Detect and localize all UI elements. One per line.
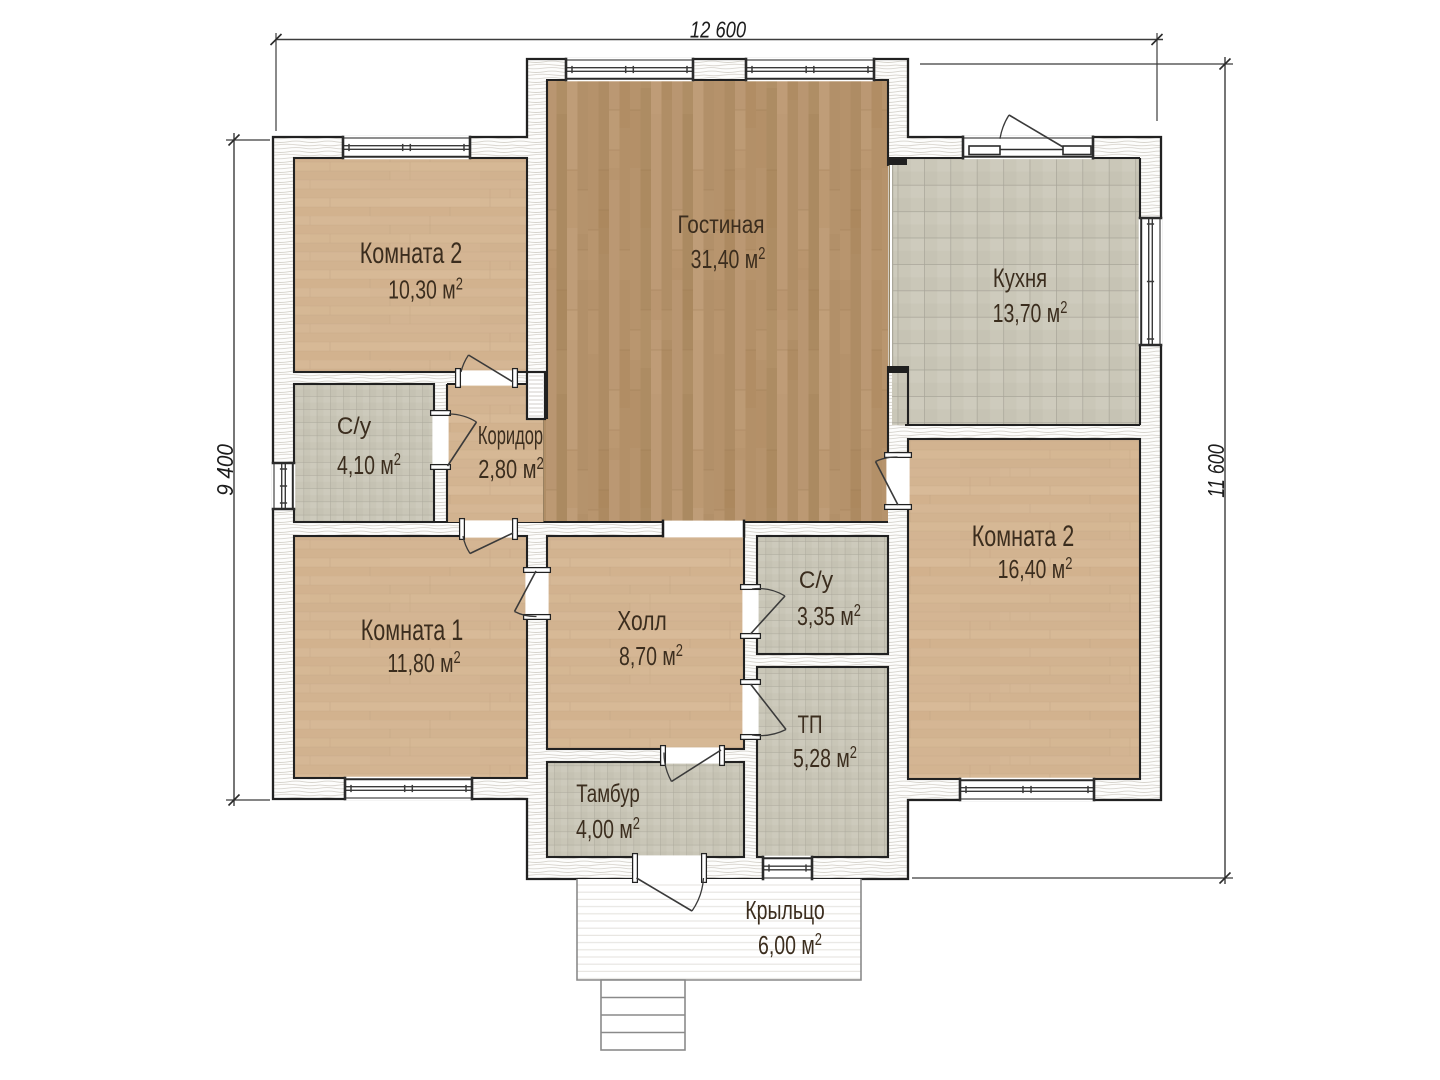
svg-text:4,00 м2: 4,00 м2 (576, 814, 640, 843)
svg-text:Холл: Холл (617, 606, 666, 637)
svg-text:3,35 м2: 3,35 м2 (797, 601, 861, 630)
svg-text:16,40 м2: 16,40 м2 (998, 554, 1073, 583)
svg-text:4,10 м2: 4,10 м2 (337, 450, 401, 479)
svg-text:Гостиная: Гостиная (677, 210, 764, 238)
svg-text:10,30 м2: 10,30 м2 (388, 275, 463, 304)
svg-text:Комната 2: Комната 2 (972, 518, 1075, 552)
svg-text:Комната 2: Комната 2 (360, 235, 463, 269)
svg-text:Комната 1: Комната 1 (361, 612, 464, 646)
svg-text:С/у: С/у (337, 412, 371, 439)
svg-text:ТП: ТП (798, 710, 823, 738)
svg-text:9 400: 9 400 (212, 444, 238, 496)
svg-text:13,70 м2: 13,70 м2 (993, 298, 1068, 327)
svg-text:11 600: 11 600 (1204, 444, 1230, 498)
svg-text:Крыльцо: Крыльцо (745, 895, 825, 924)
svg-text:31,40 м2: 31,40 м2 (691, 244, 766, 273)
svg-text:8,70 м2: 8,70 м2 (619, 641, 683, 670)
svg-text:11,80 м2: 11,80 м2 (387, 648, 460, 677)
svg-text:Кухня: Кухня (993, 263, 1047, 294)
svg-text:12 600: 12 600 (690, 18, 747, 43)
svg-text:Тамбур: Тамбур (576, 779, 640, 807)
svg-text:5,28 м2: 5,28 м2 (793, 743, 857, 772)
svg-text:С/у: С/у (799, 566, 833, 593)
svg-text:2,80 м2: 2,80 м2 (478, 454, 544, 483)
svg-text:Коридор: Коридор (478, 420, 543, 450)
svg-text:6,00 м2: 6,00 м2 (758, 930, 822, 959)
